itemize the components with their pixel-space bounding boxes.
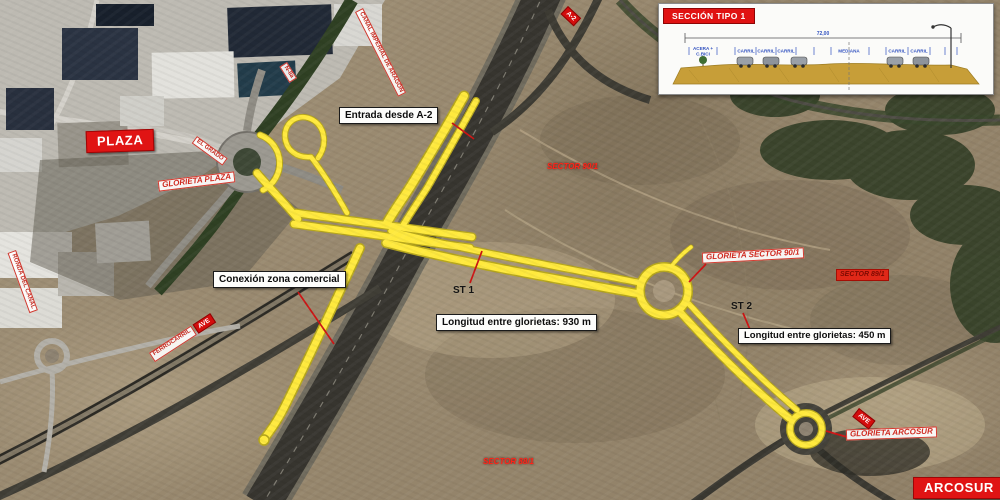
entrada-a2-label: Entrada desde A-2 — [339, 107, 438, 124]
arcosur-label: ARCOSUR — [913, 477, 1000, 499]
svg-text:CARRIL: CARRIL — [777, 49, 795, 54]
svg-text:CARRIL: CARRIL — [737, 49, 755, 54]
section-tree — [699, 56, 707, 66]
lane-labels: ACERA + C.BICI CARRIL CARRIL CARRIL MEDI… — [693, 46, 928, 57]
streetlight-icon — [931, 25, 951, 68]
section-panel: SECCIÓN TIPO 1 72,00 ACERA + C.BICI CAR — [658, 3, 994, 95]
section-title: SECCIÓN TIPO 1 — [663, 8, 755, 24]
branch-end-cap — [259, 435, 269, 445]
svg-text:C.BICI: C.BICI — [696, 52, 710, 57]
embankment — [673, 63, 979, 84]
sector-89-label: SECTOR 89/1 — [836, 269, 889, 281]
svg-text:CARRIL: CARRIL — [757, 49, 775, 54]
svg-text:CARRIL: CARRIL — [910, 49, 928, 54]
longitud-450-label: Longitud entre glorietas: 450 m — [738, 328, 891, 344]
plaza-label: PLAZA — [86, 129, 155, 154]
sector-90-label: SECTOR 90/1 — [547, 163, 598, 172]
svg-text:CARRIL: CARRIL — [888, 49, 906, 54]
st2-label: ST 2 — [731, 301, 752, 312]
plan-map-canvas: PLAZA ARCOSUR GLORIETA PLAZA GLORIETA SE… — [0, 0, 1000, 500]
longitud-930-label: Longitud entre glorietas: 930 m — [436, 314, 597, 331]
glorieta-arcosur-island — [799, 422, 813, 436]
svg-text:ACERA +: ACERA + — [693, 46, 713, 51]
glorieta-sector-island — [653, 280, 675, 302]
sector-88-label: SECTOR 88/1 — [483, 458, 534, 467]
st1-label: ST 1 — [453, 285, 474, 296]
conexion-label: Conexión zona comercial — [213, 271, 346, 288]
section-total-width: 72,00 — [817, 31, 830, 37]
